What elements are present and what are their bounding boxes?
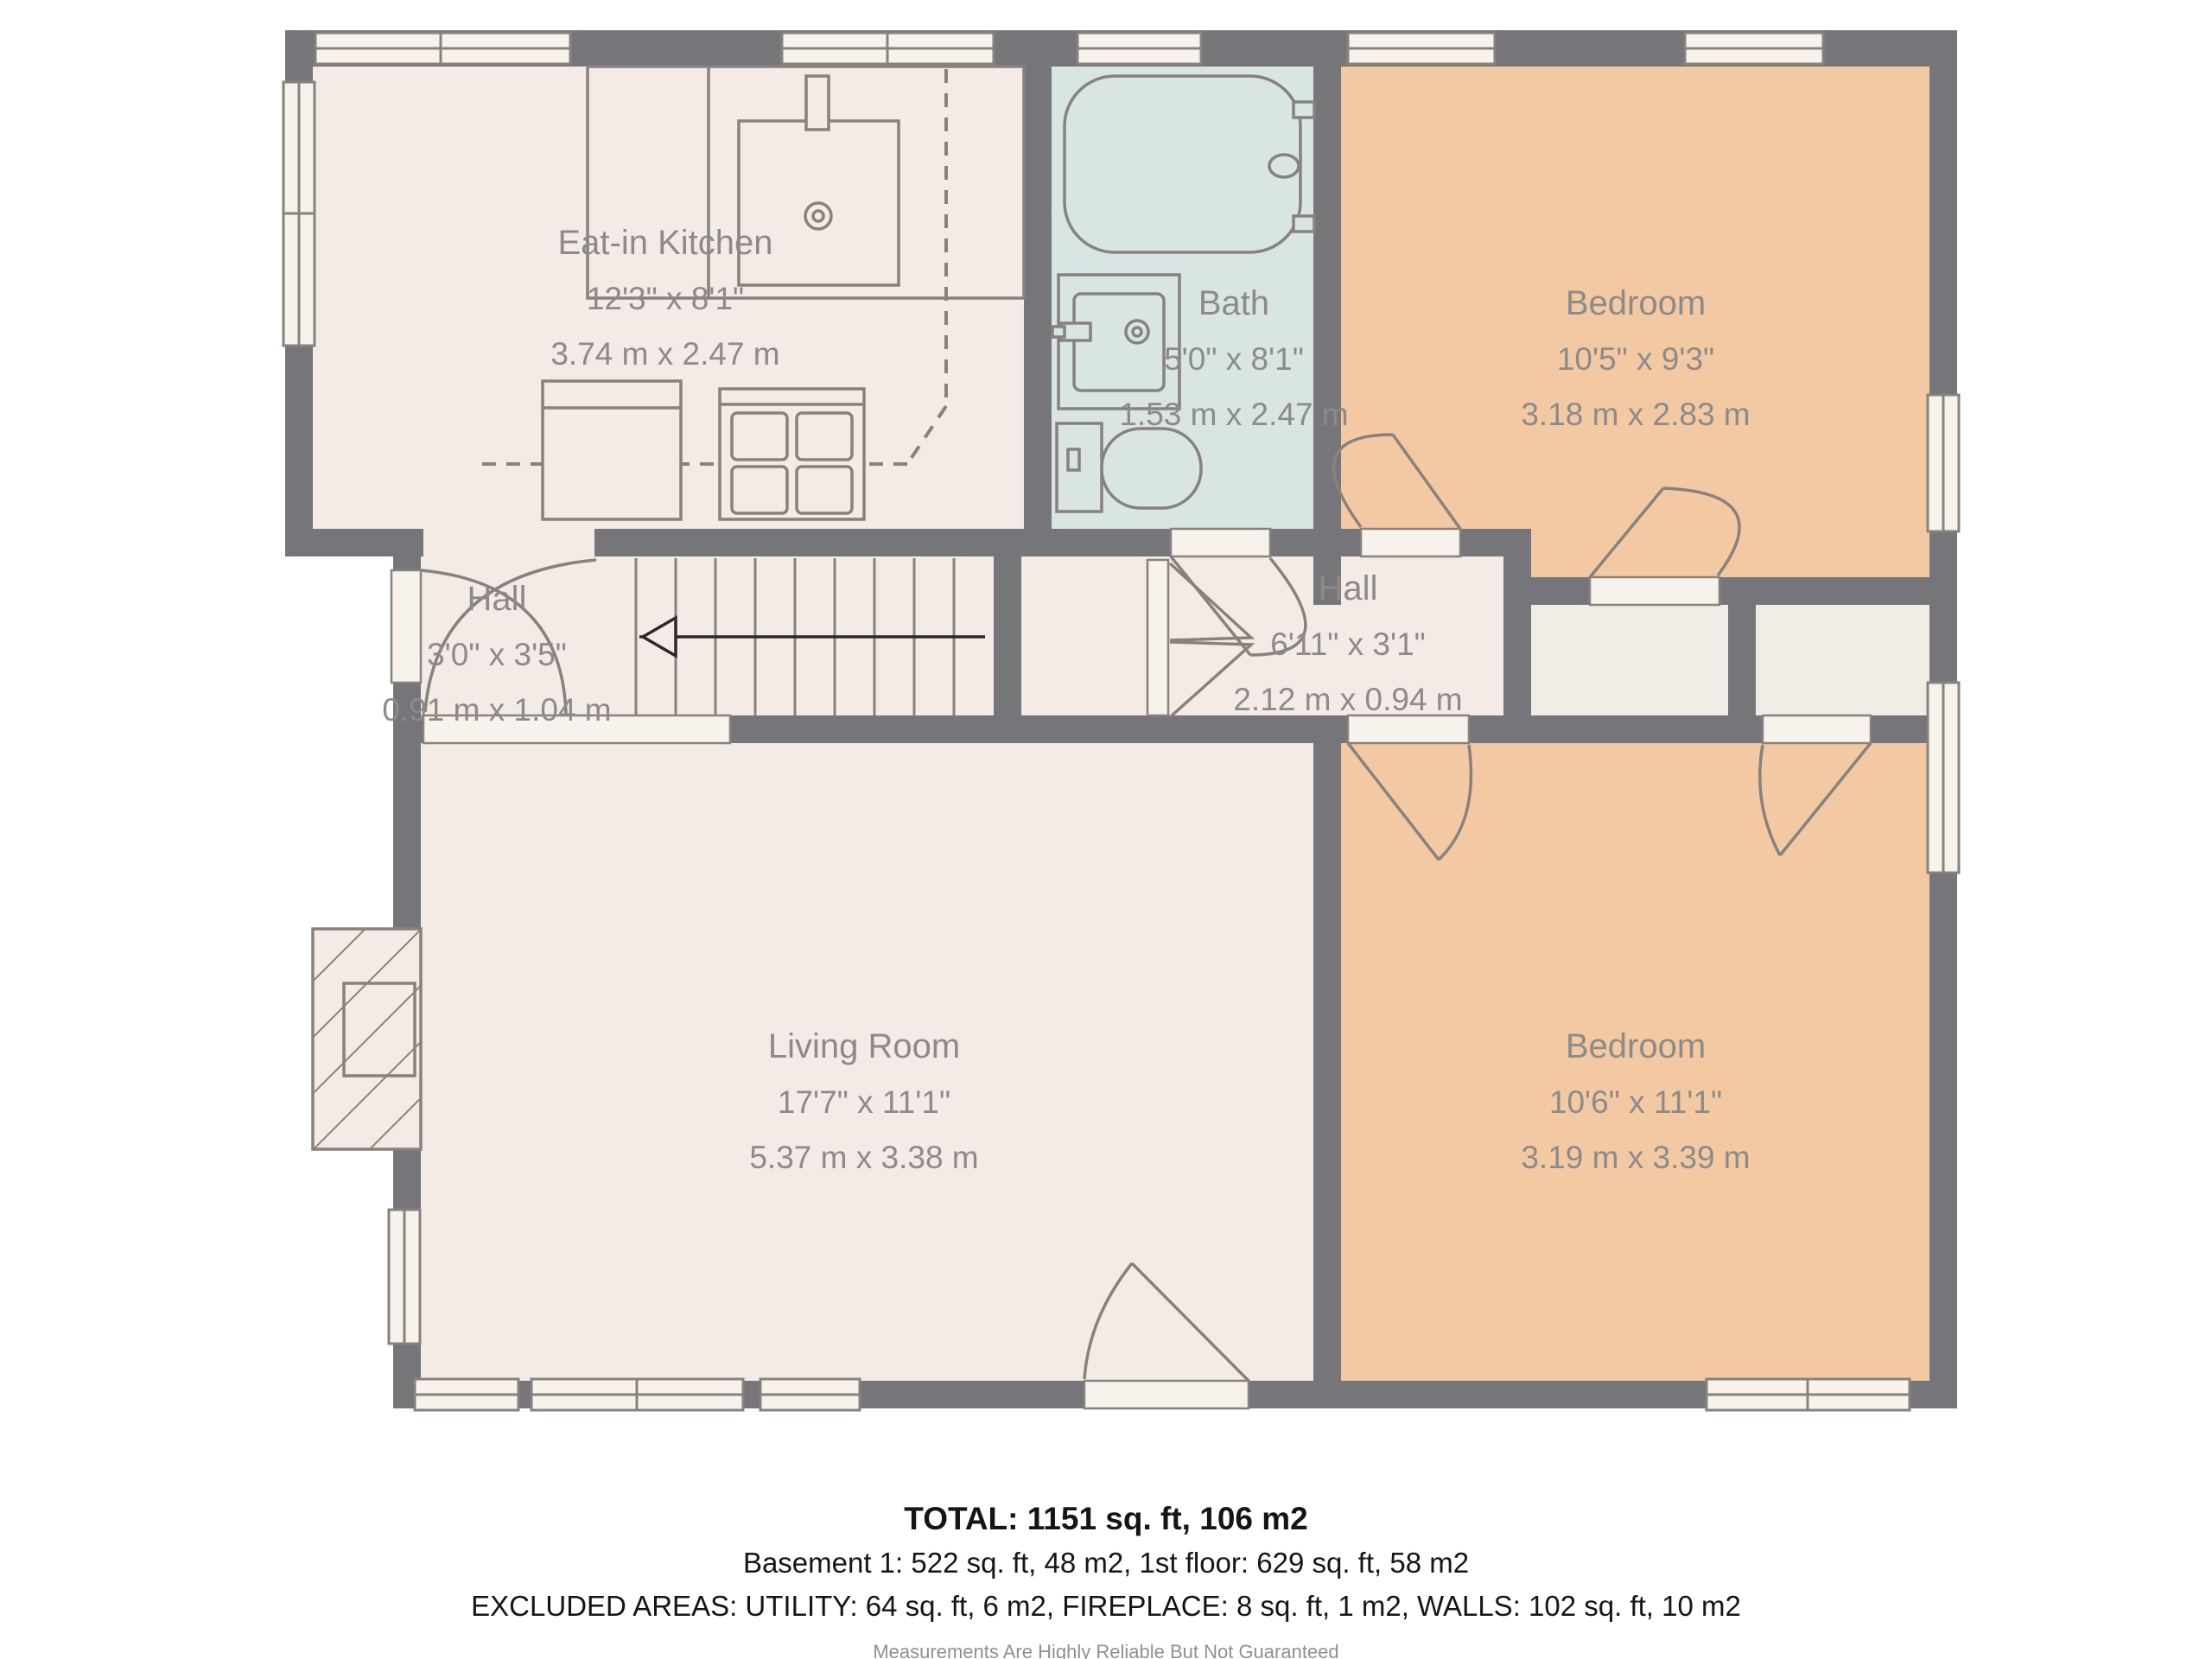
living-exterior-door-opening	[1084, 1381, 1249, 1408]
closet-left-floor	[1531, 605, 1728, 715]
closet-right-door-opening	[1763, 715, 1871, 743]
living-window-left	[389, 1210, 420, 1344]
bath-window	[1077, 33, 1201, 64]
excluded-areas-text: EXCLUDED AREAS: UTILITY: 64 sq. ft, 6 m2…	[0, 1585, 2212, 1628]
fridge-icon	[543, 381, 681, 519]
bedroom-top-window-1	[1348, 33, 1495, 64]
kitchen-window-left	[283, 82, 315, 346]
hall-living-opening	[423, 715, 730, 743]
bedroom-bottom-floor	[1341, 743, 1929, 1381]
bath-door-opening	[1171, 529, 1270, 556]
kitchen-window-top-1	[315, 33, 570, 64]
disclaimer-text: Measurements Are Highly Reliable But Not…	[0, 1628, 2212, 1659]
bedroom-bottom-window-right	[1928, 683, 1959, 873]
living-window-bottom-1	[415, 1379, 518, 1410]
bedroom-bottom-window-bottom	[1707, 1379, 1910, 1410]
living-window-bottom-3	[760, 1379, 860, 1410]
floor-plan-drawing	[0, 0, 2212, 1452]
bedroom-top-window-right	[1928, 395, 1959, 531]
stove-icon	[720, 389, 864, 519]
area-summary: TOTAL: 1151 sq. ft, 106 m2 Basement 1: 5…	[0, 1497, 2212, 1659]
closet-left-door-opening	[1590, 577, 1719, 605]
hall-closet-door-panel	[1147, 560, 1168, 715]
floor-areas-text: Basement 1: 522 sq. ft, 48 m2, 1st floor…	[0, 1541, 2212, 1585]
bath-floor	[1052, 65, 1313, 529]
closet-right-floor	[1756, 605, 1929, 715]
kitchen-hall-opening	[423, 529, 594, 556]
bedroom-top-window-2	[1685, 33, 1823, 64]
bedroom-top-door-opening	[1361, 529, 1460, 556]
kitchen-window-top-2	[782, 33, 994, 64]
entry-door-opening	[391, 570, 421, 683]
total-area-text: TOTAL: 1151 sq. ft, 106 m2	[0, 1497, 2212, 1541]
living-window-bottom-2	[531, 1379, 743, 1410]
living-room-floor	[421, 743, 1313, 1381]
floor-plan-page: Eat-in Kitchen 12'3" x 8'1" 3.74 m x 2.4…	[0, 0, 2212, 1659]
bedroom-top-floor	[1341, 65, 1929, 529]
bedroom-bottom-door-opening	[1348, 715, 1469, 743]
fireplace-icon	[313, 929, 421, 1149]
hall-center-floor	[1021, 556, 1503, 715]
